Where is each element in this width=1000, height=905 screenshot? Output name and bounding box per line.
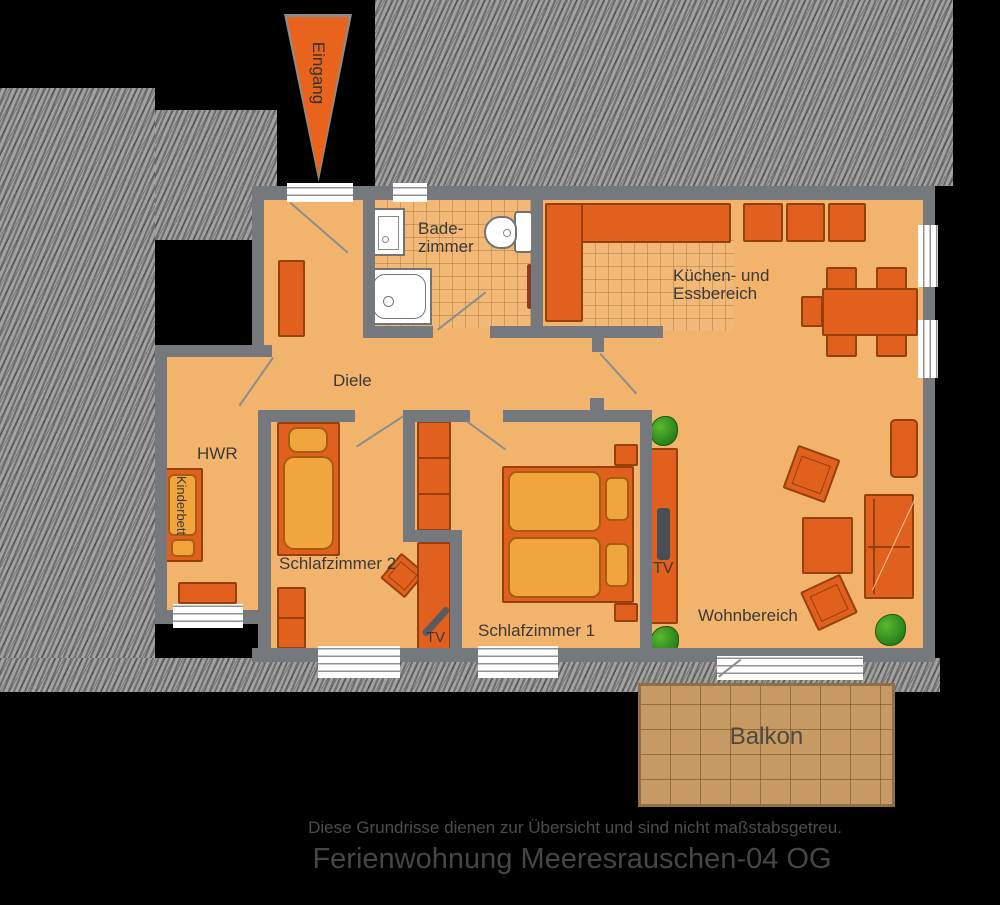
hall-cabinet <box>278 260 305 337</box>
bathroom-label-line2: zimmer <box>418 237 474 256</box>
cabinet-divider <box>278 617 305 619</box>
dining-chair <box>826 267 857 290</box>
wall <box>363 326 433 338</box>
utility-dresser <box>178 582 237 604</box>
living-label: Wohnbereich <box>698 607 798 625</box>
kitchen-cabinet <box>743 203 783 242</box>
bathroom-label-line1: Bade- <box>418 219 463 238</box>
toilet-bowl <box>484 216 517 249</box>
washbasin-drain <box>382 236 389 243</box>
tv-label-bedroom2: TV <box>426 629 445 647</box>
washbasin-bowl <box>378 216 399 250</box>
bedroom1-label: Schlafzimmer 1 <box>478 622 595 640</box>
tv-screen-icon <box>657 508 670 560</box>
utility-label: HWR <box>197 445 238 463</box>
floorplan-canvas: Balkon Kinderbett <box>0 0 1000 905</box>
wall <box>503 410 652 422</box>
double-bed-mattress <box>508 471 601 532</box>
balcony-label: Balkon <box>638 728 895 746</box>
dining-chair <box>876 334 907 357</box>
sofa <box>864 494 914 599</box>
kitchen-cabinet <box>786 203 825 242</box>
dining-chair <box>826 334 857 357</box>
bedroom2-label: Schlafzimmer 2 <box>279 555 396 573</box>
wall <box>271 410 355 422</box>
tv-label-living: TV <box>653 560 673 578</box>
window <box>173 604 243 628</box>
hall-label: Diele <box>333 372 372 390</box>
armchair-seat <box>810 584 849 622</box>
plant-icon <box>650 416 678 446</box>
coffee-table <box>802 517 853 574</box>
wardrobe <box>417 421 451 531</box>
page-title: Ferienwohnung Meeresrauschen-04 OG <box>72 843 1000 876</box>
shower <box>367 268 432 325</box>
double-bed-pillow <box>605 477 629 521</box>
double-bed-pillow <box>605 543 629 587</box>
wall <box>592 338 604 352</box>
wall <box>590 398 604 410</box>
armchair-seat <box>791 456 830 495</box>
window <box>918 225 938 287</box>
wall <box>258 410 271 662</box>
window <box>318 646 400 678</box>
double-bed-mattress <box>508 537 601 598</box>
crib-label: Kinderbett <box>174 475 189 534</box>
entrance-label: Eingang <box>308 42 328 104</box>
dining-chair <box>801 296 823 327</box>
dining-chair <box>876 267 907 290</box>
single-bed-pillow <box>288 427 328 453</box>
wall <box>155 345 167 624</box>
shower-drain <box>383 296 394 307</box>
wall <box>252 186 935 200</box>
kitchen-label-line1: Küchen- und <box>673 266 769 285</box>
entrance-door-opening <box>287 183 353 202</box>
kitchen-cabinet <box>828 203 866 242</box>
wardrobe-divider <box>418 457 450 459</box>
wall <box>363 200 375 338</box>
washbasin <box>371 208 405 256</box>
wall <box>490 326 663 338</box>
wall <box>450 530 462 662</box>
wall <box>155 345 272 357</box>
wardrobe-divider <box>418 493 450 495</box>
living-sideboard <box>890 419 918 478</box>
wall <box>531 200 543 326</box>
single-bed-mattress <box>283 456 334 550</box>
plant-icon <box>875 614 906 646</box>
toilet-drain <box>503 229 511 237</box>
crib-pillow <box>171 539 195 557</box>
window <box>478 646 558 678</box>
wall <box>403 410 415 542</box>
wall <box>640 410 652 662</box>
wall <box>252 186 264 357</box>
nightstand <box>614 444 638 466</box>
dining-table <box>822 288 918 336</box>
window <box>918 320 938 378</box>
outside-area <box>0 88 155 692</box>
window <box>393 183 427 202</box>
shower-tray <box>373 274 426 319</box>
entrance-label-wrap: Eingang <box>284 28 352 118</box>
kitchen-label-line2: Essbereich <box>673 284 757 303</box>
bathroom-label: Bade- zimmer <box>418 220 474 256</box>
kitchen-counter <box>545 203 583 322</box>
sofa-throw-line <box>872 498 916 591</box>
disclaimer-text: Diese Grundrisse dienen zur Übersicht un… <box>75 818 1000 838</box>
kitchen-label: Küchen- und Essbereich <box>673 267 769 303</box>
sofa-seat-divider <box>868 546 910 548</box>
outside-area <box>375 0 953 186</box>
nightstand <box>614 603 638 622</box>
